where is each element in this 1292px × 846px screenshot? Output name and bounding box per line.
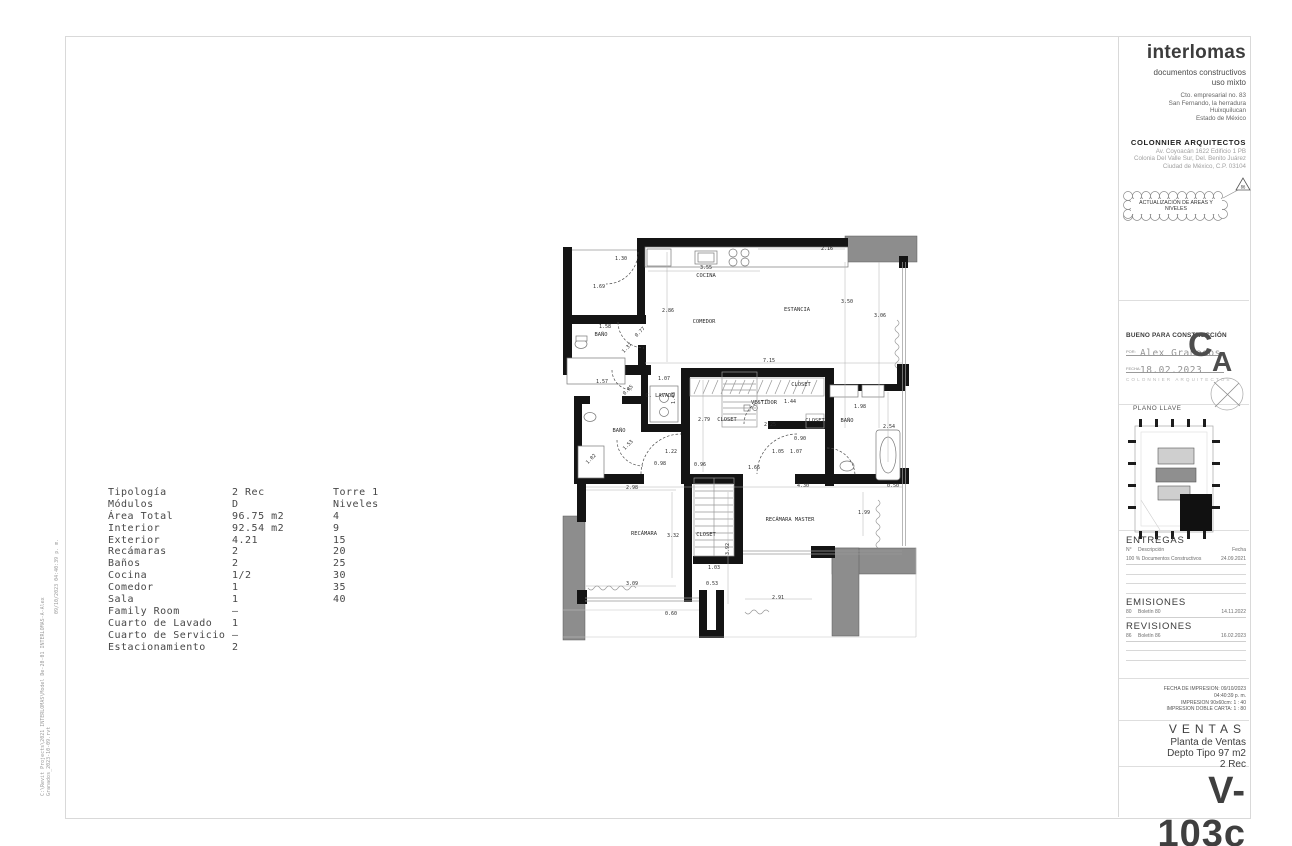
dimension-label: 3.50 — [841, 299, 853, 305]
dimension-label: 0.53 — [706, 581, 718, 587]
approval-date: 18.02.2023 — [1140, 365, 1202, 376]
project-subtitle: documentos constructivos uso mixto — [1122, 68, 1246, 87]
revisiones-row: 86 Boletín 86 16.02.2023 — [1126, 632, 1246, 642]
detail-line — [730, 380, 736, 394]
firm-address-line: Ciudad de México, C.P. 03104 — [1122, 163, 1246, 170]
revision-cloud-note: ACTUALIZACIÓN DE AREAS Y NIVELES — [1128, 200, 1224, 212]
spec-cell: 9 — [333, 523, 379, 535]
firm-address-line: Colonia Del Valle Sur, Del. Benito Juáre… — [1122, 155, 1246, 162]
empty-log-line — [1126, 575, 1246, 585]
room-label: CLOSET — [696, 532, 716, 538]
dimension-label: 1.30 — [615, 256, 627, 262]
spec-cell: 2 — [232, 642, 284, 654]
sheet-title: Planta de Ventas Depto Tipo 97 m2 2 Rec — [1122, 737, 1246, 770]
spec-cell: 20 — [333, 546, 379, 558]
dimension-label: 1.44 — [784, 399, 796, 405]
curtain-symbol — [895, 320, 899, 368]
empty-log-line — [1126, 584, 1246, 594]
emisiones-title: EMISIONES — [1126, 597, 1246, 608]
entregas-title: ENTREGAS — [1126, 535, 1246, 546]
spec-cell: – — [232, 630, 284, 642]
spec-cell: Sala — [108, 594, 225, 606]
spec-cell: 2 Rec — [232, 487, 284, 499]
key-plan-label: PLANO LLAVE — [1133, 405, 1181, 412]
dimension-label: 0.96 — [694, 462, 706, 468]
floor-plan-canvas: COCINACOMEDORESTANCIABAÑOC. LAVADOBAÑOVE… — [0, 0, 1292, 846]
dimension-label: 0.60 — [665, 611, 677, 617]
spec-cell: Exterior — [108, 535, 225, 547]
key-plan — [1135, 426, 1213, 532]
drawing-sheet: 09/10/2023 04:40:39 p. m. C:\Revit Proje… — [0, 0, 1292, 846]
spec-cell: Torre 1 — [333, 487, 379, 499]
firm-address: Av. Coyoacán 1622 Edificio 1 PB Colonia … — [1122, 148, 1246, 170]
address-line: San Fernando, la herradura — [1122, 100, 1246, 108]
detail-line — [703, 380, 709, 394]
subtitle-line: documentos constructivos — [1122, 68, 1246, 78]
dimension-label: 1.03 — [708, 565, 720, 571]
dimension-label: 3.55 — [700, 265, 712, 271]
room-label: CLOSET — [791, 382, 811, 388]
room-label: RECÁMARA MASTER — [766, 516, 815, 523]
dimension-label: 3.09 — [626, 581, 638, 587]
sheet-title-line: 2 Rec — [1122, 759, 1246, 770]
dimension-label: 2.79 — [698, 417, 710, 423]
curtain-symbol — [745, 610, 769, 614]
brand-title: interlomas — [1122, 42, 1246, 64]
room-label: COCINA — [696, 273, 716, 279]
room-label: RECÁMARA — [631, 530, 658, 537]
key-plan-tick — [1128, 440, 1136, 443]
empty-log-line — [1126, 642, 1246, 652]
spec-cell: Interior — [108, 523, 225, 535]
spec-cell: 30 — [333, 570, 379, 582]
revision-fecha: 16.02.2023 — [1221, 632, 1246, 641]
key-plan-tick — [1203, 419, 1206, 427]
key-plan-tick — [1212, 506, 1220, 509]
key-plan-tick — [1187, 419, 1190, 427]
detail-line — [811, 380, 817, 394]
key-plan-tick — [1128, 484, 1136, 487]
dimension-label: 0.98 — [654, 461, 666, 467]
entrega-fecha: 24.09.2021 — [1221, 555, 1246, 564]
dimension-label: 0.90 — [794, 436, 806, 442]
print-scale-line: IMPRESION 90x60cm: 1 : 40 — [1122, 700, 1246, 707]
spec-cell: 35 — [333, 582, 379, 594]
detail-line — [775, 380, 781, 394]
dimension-label: 3.92 — [725, 543, 731, 555]
spec-cell: 1 — [232, 594, 284, 606]
key-plan-core — [1156, 468, 1196, 482]
revisiones-title: REVISIONES — [1126, 621, 1246, 632]
dimension-label: 1.66 — [748, 465, 760, 471]
por-label: POR: — [1126, 349, 1136, 354]
dimension-label: 1.43 — [671, 392, 677, 404]
sheet-number: V-103c — [1122, 770, 1246, 846]
spec-cell: 96.75 m2 — [232, 511, 284, 523]
room-label: COMEDOR — [693, 319, 716, 325]
key-plan-tick — [1212, 440, 1220, 443]
dimension-label: 1.98 — [854, 404, 866, 410]
dimension-label: 1.07 — [790, 449, 802, 455]
kitchen-fixtures — [645, 247, 848, 267]
spec-cell: 1/2 — [232, 570, 284, 582]
dimension-label: 2.25 — [764, 422, 776, 428]
emisiones-row: 80 Boletín 80 14.11.2022 — [1126, 608, 1246, 618]
room-label: CLOSET — [717, 417, 737, 423]
dimension-label: 1.58 — [599, 324, 611, 330]
detail-line — [748, 380, 754, 394]
spec-cell: 92.54 m2 — [232, 523, 284, 535]
room-label: BAÑO — [595, 331, 608, 338]
dimension-label: 1.69 — [593, 284, 605, 290]
print-scale-line: IMPRESION DOBLE CARTA: 1 : 80 — [1122, 706, 1246, 713]
dimension-label: 2.54 — [883, 424, 895, 430]
spec-cell: 40 — [333, 594, 379, 606]
dimension-label: 1.57 — [596, 379, 608, 385]
dimension-label: 0.85 — [622, 384, 635, 397]
dimension-label: 0.50 — [887, 483, 899, 489]
room-label: BAÑO — [841, 417, 854, 424]
key-plan-tick — [1171, 419, 1174, 427]
architecture-firm-name: COLONNIER ARQUITECTOS — [1122, 138, 1246, 147]
room-label: BAÑO — [613, 427, 626, 434]
logo-letter-a: A — [1212, 346, 1232, 378]
emision-desc: Boletín 80 — [1138, 608, 1161, 617]
spec-cell: – — [232, 606, 284, 618]
key-plan-unit-highlight — [1180, 494, 1212, 531]
svg-text:86: 86 — [1241, 185, 1246, 190]
spec-cell: 4.21 — [232, 535, 284, 547]
print-date-line: FECHA DE IMPRESION: 09/10/2023 — [1122, 686, 1246, 693]
spec-cell: Comedor — [108, 582, 225, 594]
project-address: Cto. empresarial no. 83 San Fernando, la… — [1122, 92, 1246, 122]
detail-line — [784, 380, 790, 394]
spec-table-labels: TipologíaMódulosÁrea TotalInteriorExteri… — [108, 487, 225, 653]
spec-cell: 25 — [333, 558, 379, 570]
spec-cell: Cuarto de Lavado — [108, 618, 225, 630]
spec-cell: 2 — [232, 546, 284, 558]
detail-line — [739, 380, 745, 394]
dimension-label: 3.32 — [667, 533, 679, 539]
approval-title: BUENO PARA CONSTRUCCIÓN — [1126, 332, 1246, 339]
spec-cell: Recámaras — [108, 546, 225, 558]
gray-columns — [563, 236, 917, 640]
vanity-icon — [862, 385, 884, 397]
spec-cell: 1 — [232, 582, 284, 594]
windows-and-floor-lines — [563, 250, 916, 637]
dimension-label: 3.06 — [874, 313, 886, 319]
col-fecha: Fecha — [1232, 546, 1246, 555]
entregas-row: 100 % Documentos Constructivos 24.09.202… — [1126, 555, 1246, 565]
key-plan-tick — [1139, 419, 1142, 427]
print-time-line: 04:40:39 p. m. — [1122, 693, 1246, 700]
entregas-header: N° Descripción Fecha — [1126, 546, 1246, 555]
spec-cell: Baños — [108, 558, 225, 570]
spec-cell: 1 — [232, 618, 284, 630]
dimension-label: 2.86 — [662, 308, 674, 314]
emision-fecha: 14.11.2022 — [1221, 608, 1246, 617]
entrega-desc: 100 % Documentos Constructivos — [1126, 555, 1201, 564]
spec-cell: 4 — [333, 511, 379, 523]
key-plan-tick — [1212, 484, 1220, 487]
detail-line — [757, 380, 763, 394]
col-numero: N° — [1126, 546, 1132, 555]
revision-leader — [1223, 190, 1238, 198]
toilet-icon — [584, 413, 596, 422]
spec-cell: Tipología — [108, 487, 225, 499]
toilet-icon — [840, 461, 854, 471]
col-descripcion: Descripción — [1138, 546, 1164, 555]
key-plan-tick — [1128, 462, 1136, 465]
revision-delta-triangle: 86 — [1236, 178, 1250, 190]
dimension-label: 2.16 — [821, 246, 833, 252]
series-label: VENTAS — [1122, 722, 1246, 736]
detail-line — [694, 380, 700, 394]
spec-cell: Cocina — [108, 570, 225, 582]
dimension-label: 2.98 — [626, 485, 638, 491]
sheet-title-line: Depto Tipo 97 m2 — [1122, 748, 1246, 759]
dimension-label: 7.15 — [763, 358, 775, 364]
issue-log: ENTREGAS N° Descripción Fecha 100 % Docu… — [1126, 532, 1246, 661]
key-plan-tick — [1212, 462, 1220, 465]
dimension-label: 1.37 — [621, 342, 634, 355]
dimension-label: 2.91 — [772, 595, 784, 601]
detail-line — [766, 380, 772, 394]
dimension-label: 4.30 — [797, 483, 809, 489]
spec-cell: Cuarto de Servicio — [108, 630, 225, 642]
fridge-icon — [647, 249, 671, 266]
room-label: VESTIDOR — [751, 400, 778, 406]
print-info: FECHA DE IMPRESION: 09/10/2023 04:40:39 … — [1122, 686, 1246, 713]
spec-cell: D — [232, 499, 284, 511]
fecha-label: FECHA: — [1126, 366, 1141, 371]
key-plan-tick — [1155, 419, 1158, 427]
spec-cell: Área Total — [108, 511, 225, 523]
spec-cell: 2 — [232, 558, 284, 570]
address-line: Huixquilucan — [1122, 107, 1246, 115]
spec-cell: Niveles — [333, 499, 379, 511]
key-plan-tick — [1128, 506, 1136, 509]
dimension-label: 0.77 — [634, 326, 647, 339]
vanity-icon — [830, 385, 858, 397]
sheet-title-line: Planta de Ventas — [1122, 737, 1246, 748]
dimension-label: 1.22 — [665, 449, 677, 455]
dimension-label: 1.05 — [772, 449, 784, 455]
spec-cell: Estacionamiento — [108, 642, 225, 654]
spec-table-tower-levels: Torre 1Niveles49152025303540 — [333, 487, 379, 606]
firm-address-line: Av. Coyoacán 1622 Edificio 1 PB — [1122, 148, 1246, 155]
dimension-label: 1.99 — [858, 510, 870, 516]
spec-cell: 15 — [333, 535, 379, 547]
spec-cell: Módulos — [108, 499, 225, 511]
key-plan-core — [1158, 448, 1194, 464]
dimension-label: 1.53 — [622, 439, 635, 452]
spec-table-values: 2 RecD96.75 m292.54 m24.21221/211–1–2 — [232, 487, 284, 653]
detail-line — [712, 380, 718, 394]
empty-log-line — [1126, 565, 1246, 575]
address-line: Cto. empresarial no. 83 — [1122, 92, 1246, 100]
address-line: Estado de México — [1122, 115, 1246, 123]
logo-letter-c: C — [1188, 326, 1213, 365]
subtitle-line: uso mixto — [1122, 78, 1246, 88]
curtain-symbol — [876, 500, 880, 548]
dimension-label: 1.07 — [658, 376, 670, 382]
revision-desc: Boletín 86 — [1138, 632, 1161, 641]
room-label: CLOSET — [805, 418, 825, 424]
spec-cell: Family Room — [108, 606, 225, 618]
empty-log-line — [1126, 651, 1246, 661]
room-label: ESTANCIA — [784, 307, 811, 313]
